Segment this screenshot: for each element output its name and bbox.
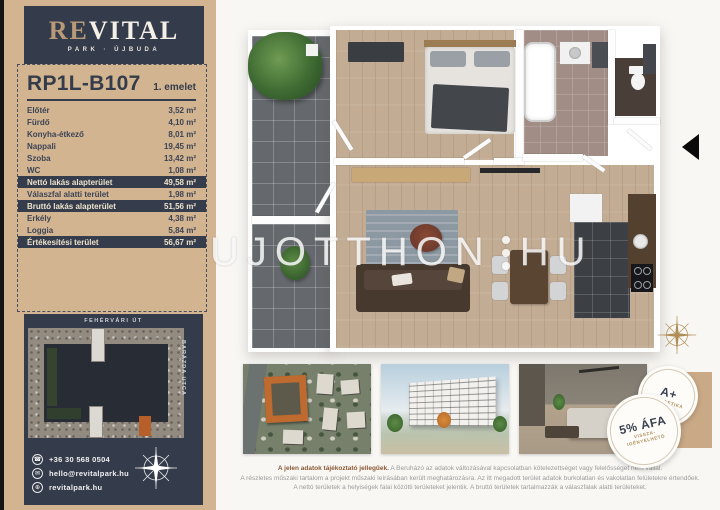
tv-console xyxy=(352,168,470,182)
cooktop xyxy=(631,264,653,292)
compass-rose-gold-icon xyxy=(654,312,700,358)
door xyxy=(627,128,653,150)
building-block xyxy=(347,412,366,429)
site-map-box: FEHÉRVÁRI ÚT BARÁZDA UTCA ☎ +36 30 568 0… xyxy=(24,314,203,505)
unit-location-highlight xyxy=(139,416,151,436)
vat-badge-subtitle-line2: IGÉNYELHETŐ xyxy=(627,433,666,448)
brand-logo-rest: VITAL xyxy=(89,16,179,45)
bed-throw xyxy=(431,84,509,132)
building-block xyxy=(283,430,303,445)
contact-website-label: revitalpark.hu xyxy=(49,483,102,492)
area-row-value: 3,52 m² xyxy=(168,106,196,115)
street-label-top: FEHÉRVÁRI ÚT xyxy=(24,318,203,324)
vat-badge-subtitle-line1: VISSZA- xyxy=(625,428,664,443)
title-underline xyxy=(27,99,196,101)
globe-icon: ⊕ xyxy=(32,482,43,493)
wall xyxy=(252,216,330,224)
area-row-label: Előtér xyxy=(27,106,50,115)
spec-panel: RP1L-B107 1. emelet Előtér 3,52 m² Fürdő… xyxy=(17,64,207,312)
ceiling-light xyxy=(579,366,619,373)
area-row-value: 1,98 m² xyxy=(168,190,196,199)
area-row-label: Szoba xyxy=(27,154,51,163)
utility-shaft xyxy=(643,44,656,74)
brand-logo: REVITAL PARK · ÚJBUDA xyxy=(24,6,204,64)
bed xyxy=(424,40,516,134)
area-row-label: Konyha-étkező xyxy=(27,130,84,139)
flyer-page: REVITAL PARK · ÚJBUDA RP1L-B107 1. emele… xyxy=(0,0,720,510)
area-row-label: Loggia xyxy=(27,226,53,235)
area-row: Fürdő 4,10 m² xyxy=(18,116,206,128)
apartment-body xyxy=(330,26,660,352)
courtyard xyxy=(44,344,168,422)
tree xyxy=(387,414,403,432)
planter xyxy=(306,44,318,56)
area-row-value: 49,58 m² xyxy=(164,178,196,187)
compass-rose-icon xyxy=(132,444,180,492)
area-row: Szoba 13,42 m² xyxy=(18,152,206,164)
thumbnail-aerial[interactable] xyxy=(243,364,371,454)
disclaimer-line-1-rest: A Beruházó az adatok változásával kapcso… xyxy=(389,465,662,472)
chair xyxy=(550,282,566,300)
contact-email[interactable]: ✉ hello@revitalpark.hu xyxy=(32,466,129,480)
bathroom-sink xyxy=(560,42,590,64)
area-row: Válaszfal alatti terület 1,98 m² xyxy=(18,188,206,200)
terrace-block xyxy=(248,30,334,352)
toilet xyxy=(631,73,645,90)
contact-email-label: hello@revitalpark.hu xyxy=(49,469,129,478)
area-row-value: 4,38 m² xyxy=(168,214,196,223)
brand-tagline: PARK · ÚJBUDA xyxy=(68,47,160,53)
tree xyxy=(248,32,322,100)
area-row-value: 4,10 m² xyxy=(168,118,196,127)
plant xyxy=(553,394,565,410)
highlighted-building xyxy=(264,375,308,423)
area-row-value: 8,01 m² xyxy=(168,130,196,139)
area-row-label: WC xyxy=(27,166,40,175)
area-row-label: Erkély xyxy=(27,214,51,223)
floor-plan xyxy=(248,6,662,352)
disclaimer: A jelen adatok tájékoztató jellegűek. A … xyxy=(230,464,710,493)
contact-block: ☎ +36 30 568 0504 ✉ hello@revitalpark.hu… xyxy=(32,452,129,494)
watermark-dots xyxy=(502,236,510,270)
area-row-value: 5,84 m² xyxy=(168,226,196,235)
watermark-right: HU xyxy=(520,230,594,275)
contact-phone-label: +36 30 568 0504 xyxy=(49,455,110,464)
dresser xyxy=(348,42,404,62)
unit-code: RP1L-B107 xyxy=(27,72,141,96)
kitchen-counter xyxy=(628,194,656,288)
unit-floor-label: 1. emelet xyxy=(153,82,196,93)
wall xyxy=(523,154,583,161)
courtyard-green xyxy=(47,408,81,419)
orange-tree xyxy=(437,412,451,428)
stairwell-block xyxy=(91,328,105,362)
area-row: Erkély 4,38 m² xyxy=(18,212,206,224)
prev-arrow-icon[interactable] xyxy=(682,134,699,160)
sink-bowl xyxy=(569,47,581,59)
coffee-table xyxy=(545,426,579,438)
vat-badge-title: 5% ÁFA xyxy=(618,413,668,437)
area-row-label: Nettó lakás alapterület xyxy=(27,178,112,187)
brand-logo-text: REVITAL xyxy=(49,18,180,44)
disclaimer-line-2: A részletes műszaki tartalom a projekt m… xyxy=(230,474,710,484)
building-render xyxy=(409,376,496,426)
bed-headboard xyxy=(424,40,516,47)
area-row-label: Bruttó lakás alapterület xyxy=(27,202,116,211)
area-row-label: Nappali xyxy=(27,142,56,151)
area-row: WC 1,08 m² xyxy=(18,164,206,176)
wall xyxy=(334,158,464,165)
area-row: Értékesítési terület 56,67 m² xyxy=(18,236,206,248)
contact-website[interactable]: ⊕ revitalpark.hu xyxy=(32,480,129,494)
area-row-label: Válaszfal alatti terület xyxy=(27,190,109,199)
mail-icon: ✉ xyxy=(32,468,43,479)
area-row-value: 51,56 m² xyxy=(164,202,196,211)
area-row-value: 19,45 m² xyxy=(164,142,196,151)
area-row: Konyha-étkező 8,01 m² xyxy=(18,128,206,140)
area-row: Loggia 5,84 m² xyxy=(18,224,206,236)
thumbnail-building[interactable] xyxy=(381,364,509,454)
disclaimer-line-3: A nettó területek a helyiségek falai köz… xyxy=(230,483,710,493)
area-row-label: Fürdő xyxy=(27,118,50,127)
phone-icon: ☎ xyxy=(32,454,43,465)
pillow xyxy=(430,51,466,67)
area-row: Nappali 19,45 m² xyxy=(18,140,206,152)
chair xyxy=(492,282,508,300)
watermark-left: UJOTTHON xyxy=(210,230,492,275)
site-map-building xyxy=(28,328,184,438)
stairwell-block xyxy=(89,406,103,438)
wall xyxy=(494,158,524,165)
pillow xyxy=(474,51,510,67)
wall xyxy=(614,118,660,124)
tree xyxy=(493,416,507,432)
area-row: Előtér 3,52 m² xyxy=(18,104,206,116)
contact-phone[interactable]: ☎ +36 30 568 0504 xyxy=(32,452,129,466)
disclaimer-bold: A jelen adatok tájékoztató jellegűek. xyxy=(278,465,389,472)
brand-logo-first: RE xyxy=(49,16,89,45)
vat-badge-subtitle: VISSZA- IGÉNYELHETŐ xyxy=(625,428,666,448)
area-row-value: 13,42 m² xyxy=(164,154,196,163)
area-table: Előtér 3,52 m² Fürdő 4,10 m² Konyha-étke… xyxy=(18,104,206,248)
kitchen-cabinet xyxy=(570,194,602,222)
building-block xyxy=(340,379,359,395)
building-block xyxy=(322,407,338,430)
watermark: UJOTTHON HU xyxy=(210,230,594,275)
area-row-value: 1,08 m² xyxy=(168,166,196,175)
courtyard-green xyxy=(47,348,57,406)
kitchen-sink xyxy=(633,234,648,249)
tv xyxy=(480,168,540,173)
building-block xyxy=(316,373,333,394)
wall xyxy=(516,30,523,165)
area-row-label: Értékesítési terület xyxy=(27,238,99,247)
area-row: Bruttó lakás alapterület 51,56 m² xyxy=(18,200,206,212)
street-label-side: BARÁZDA UTCA xyxy=(180,340,186,414)
unit-title-row: RP1L-B107 1. emelet xyxy=(27,72,196,96)
area-row-value: 56,67 m² xyxy=(164,238,196,247)
bathtub xyxy=(524,42,556,122)
wall xyxy=(608,30,615,124)
accent-wall xyxy=(519,364,545,426)
area-row: Nettó lakás alapterület 49,58 m² xyxy=(18,176,206,188)
